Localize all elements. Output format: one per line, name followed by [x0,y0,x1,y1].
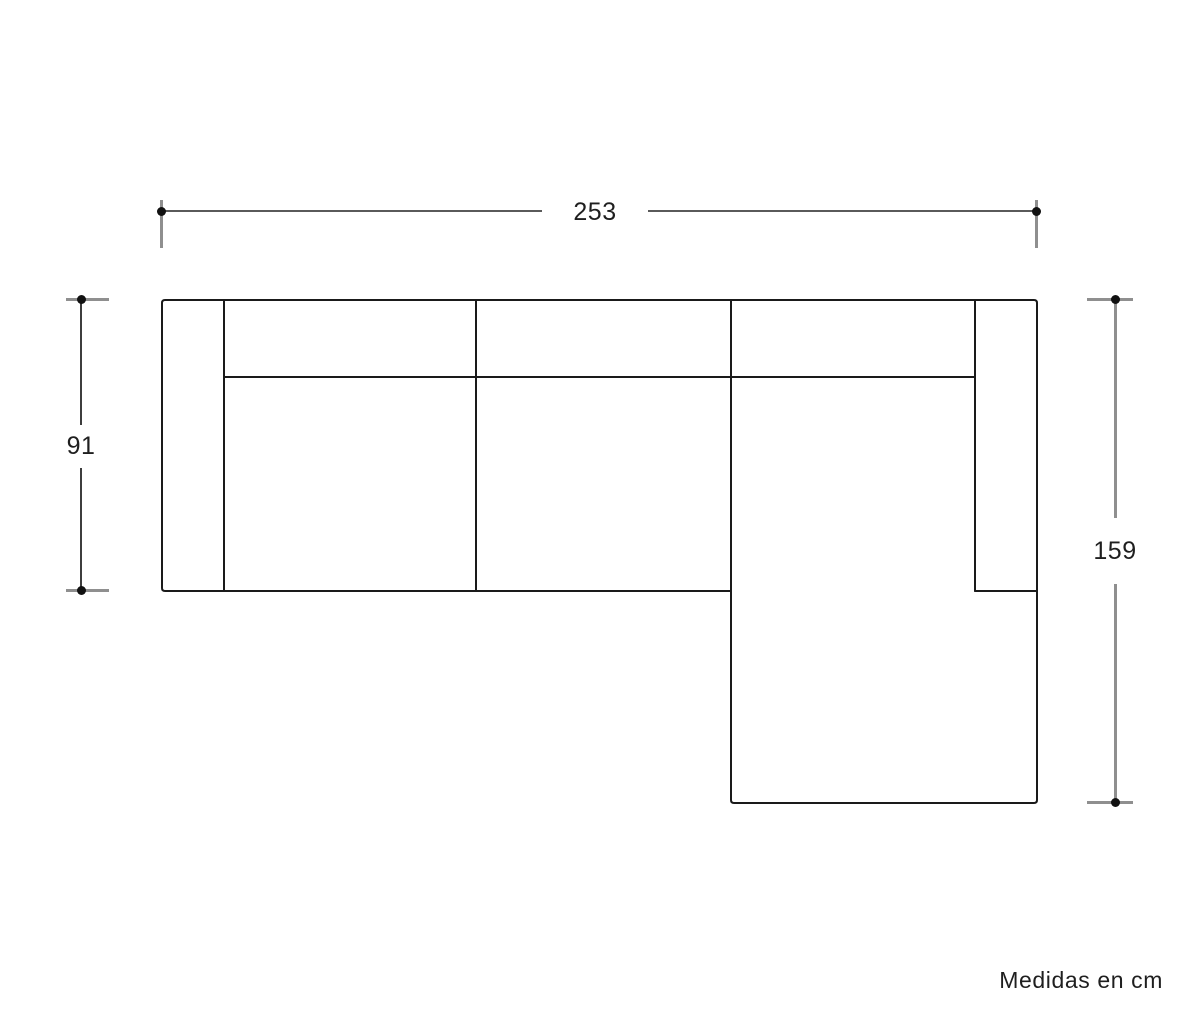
dim-depth-left-tick-top [66,298,109,301]
dim-depth-right-line-bottom [1114,584,1117,803]
dim-depth-left-line-top [80,300,82,425]
dim-width-dot-left [157,207,166,216]
units-note: Medidas en cm [999,966,1163,994]
dim-depth-left-dot-bottom [77,586,86,595]
dim-depth-right-tick-bottom [1087,801,1133,804]
dim-width-dot-right [1032,207,1041,216]
dim-depth-right-dot-top [1111,295,1120,304]
dim-width-line-right [648,210,1037,212]
sofa-outline [162,300,1037,803]
dim-depth-right-line-top [1114,300,1117,518]
dim-depth-left-line-bottom [80,468,82,591]
sofa-top-view-drawing [0,0,1200,1028]
dim-depth-right-tick-top [1087,298,1133,301]
dim-depth-left-dot-top [77,295,86,304]
dim-depth-left-tick-bottom [66,589,109,592]
dim-depth-left-label: 91 [51,432,111,460]
dimension-drawing: 253 91 159 Medidas en cm [0,0,1200,1028]
dim-depth-right-label: 159 [1073,537,1157,565]
dim-width-label: 253 [542,198,648,226]
dim-depth-right-dot-bottom [1111,798,1120,807]
dim-width-line-left [161,210,542,212]
